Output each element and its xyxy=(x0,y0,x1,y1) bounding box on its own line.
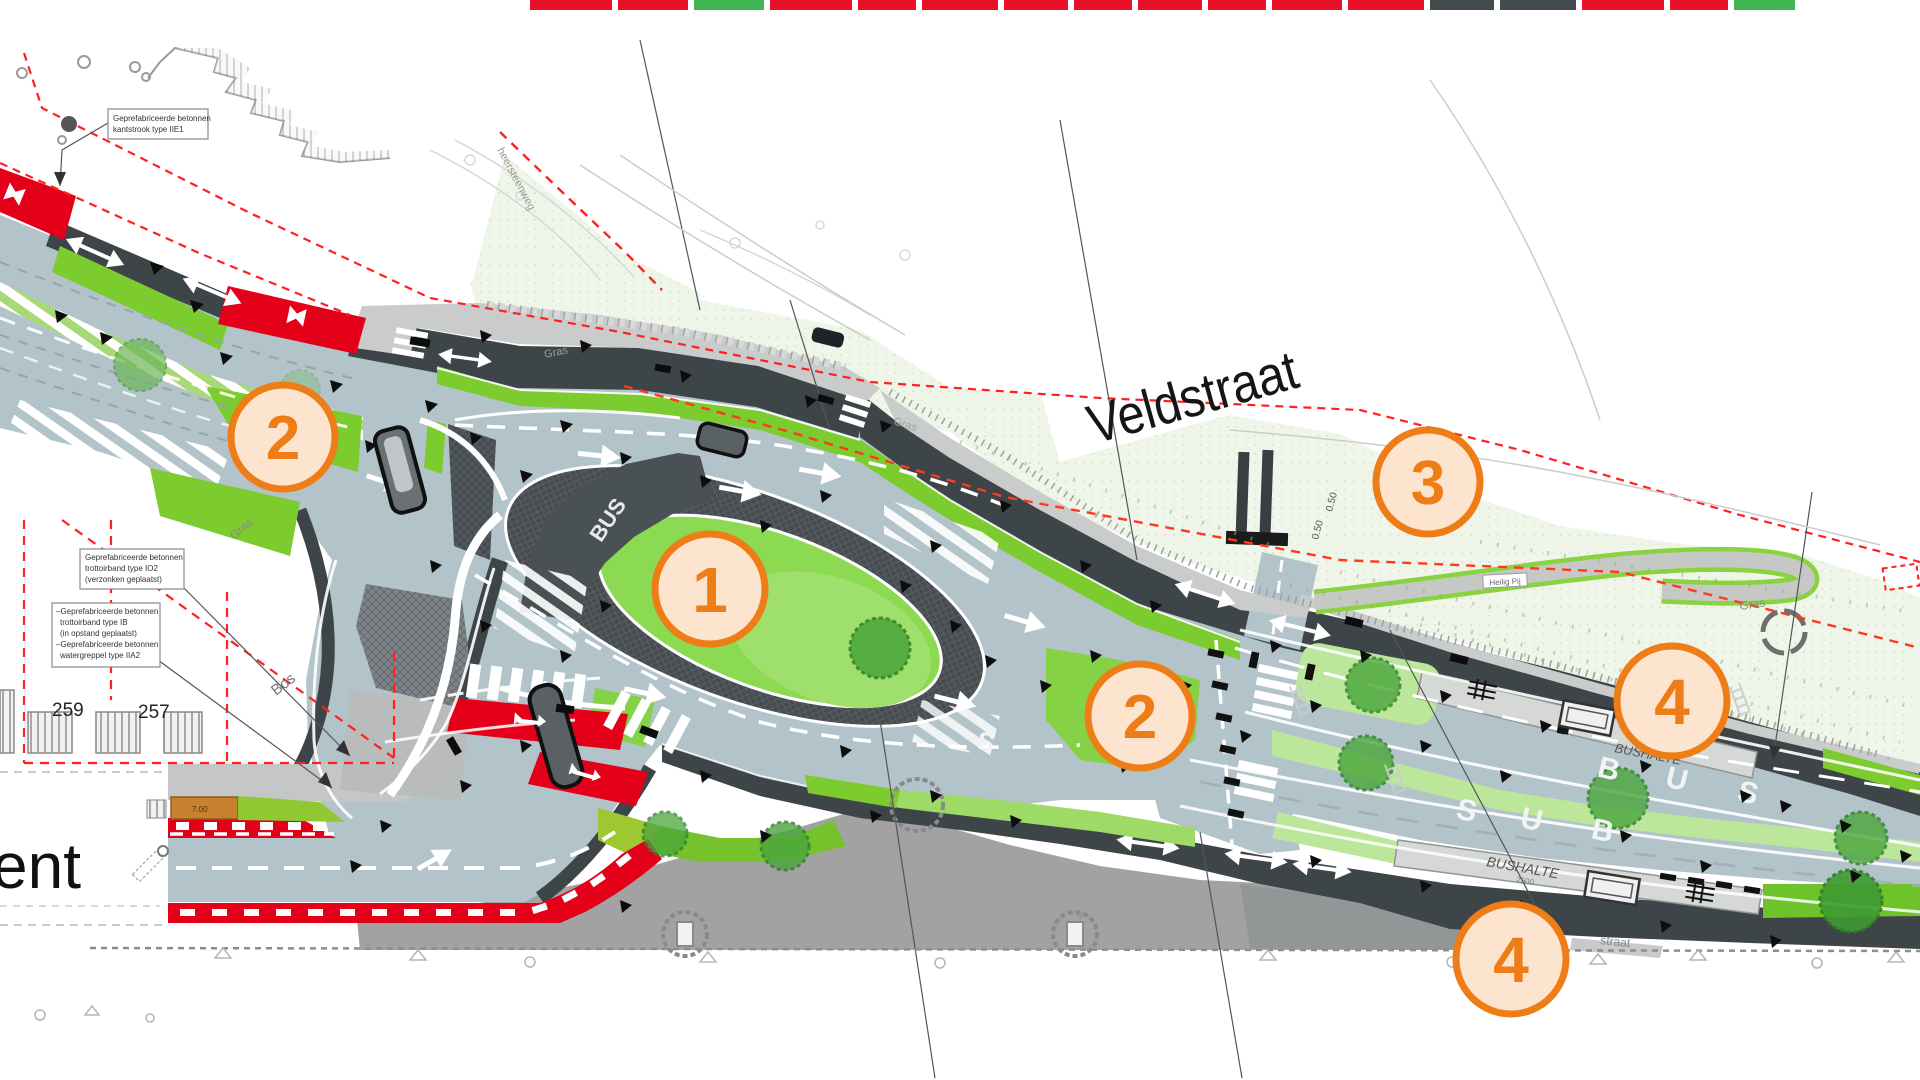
svg-text:2: 2 xyxy=(266,404,300,473)
svg-text:Geprefabriceerde betonnen: Geprefabriceerde betonnen xyxy=(85,553,183,562)
svg-text:4: 4 xyxy=(1493,924,1529,996)
svg-text:4: 4 xyxy=(1654,666,1690,738)
svg-text:trottoirband type IB: trottoirband type IB xyxy=(60,618,128,627)
svg-text:3: 3 xyxy=(1411,449,1445,518)
svg-text:(verzonken geplaatst): (verzonken geplaatst) xyxy=(85,575,162,584)
svg-text:ent: ent xyxy=(0,830,81,902)
svg-text:–Geprefabriceerde betonnen: –Geprefabriceerde betonnen xyxy=(56,607,158,616)
svg-text:kantstrook type IIE1: kantstrook type IIE1 xyxy=(113,125,184,134)
svg-text:–Geprefabriceerde betonnen: –Geprefabriceerde betonnen xyxy=(56,640,158,649)
svg-text:watergreppel type IIA2: watergreppel type IIA2 xyxy=(59,651,141,660)
svg-text:Heilig Pij: Heilig Pij xyxy=(1489,577,1521,588)
svg-text:1: 1 xyxy=(692,554,728,626)
svg-text:Geprefabriceerde betonnen: Geprefabriceerde betonnen xyxy=(113,114,211,123)
svg-text:7.00: 7.00 xyxy=(192,805,208,814)
svg-text:257: 257 xyxy=(138,702,170,723)
svg-text:trottoirband type IO2: trottoirband type IO2 xyxy=(85,564,158,573)
svg-text:259: 259 xyxy=(52,700,84,721)
svg-text:(in opstand geplaatst): (in opstand geplaatst) xyxy=(60,629,137,638)
svg-text:2: 2 xyxy=(1123,683,1157,752)
